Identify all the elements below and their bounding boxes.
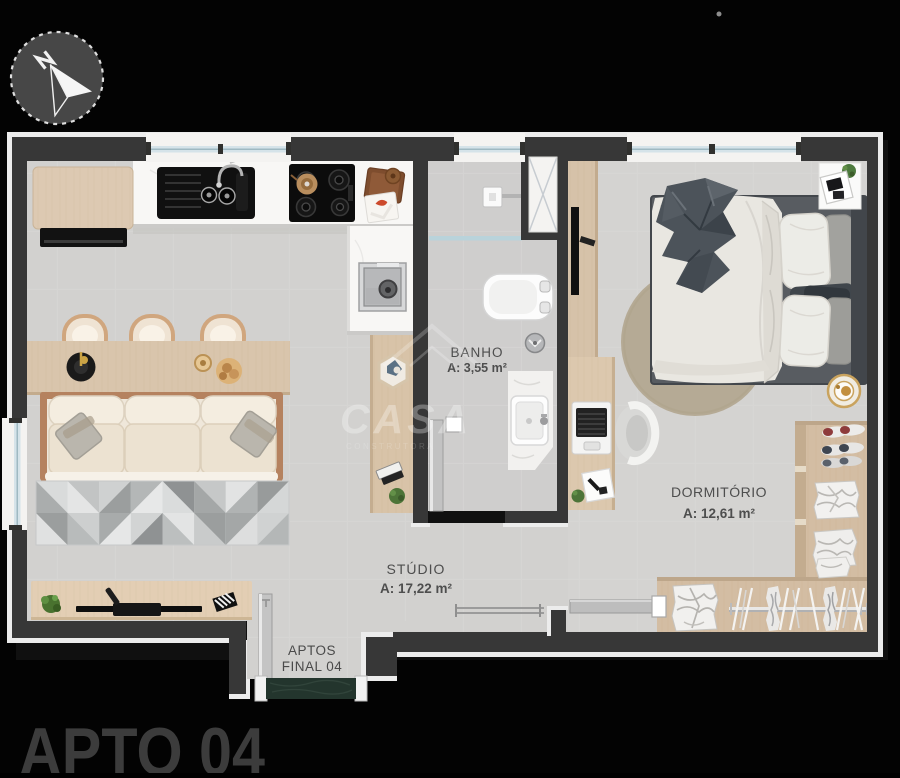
svg-text:A: 17,22 m²: A: 17,22 m² — [380, 581, 453, 596]
svg-text:A: 12,61 m²: A: 12,61 m² — [683, 506, 756, 521]
svg-text:APTOS: APTOS — [288, 643, 336, 658]
svg-text:APTO 04: APTO 04 — [19, 714, 265, 773]
svg-text:CONSTRUTORA: CONSTRUTORA — [346, 442, 435, 451]
svg-text:CASA: CASA — [340, 396, 472, 442]
svg-text:DORMITÓRIO: DORMITÓRIO — [671, 484, 767, 500]
svg-text:FINAL 04: FINAL 04 — [282, 659, 343, 674]
svg-text:STÚDIO: STÚDIO — [387, 561, 446, 577]
